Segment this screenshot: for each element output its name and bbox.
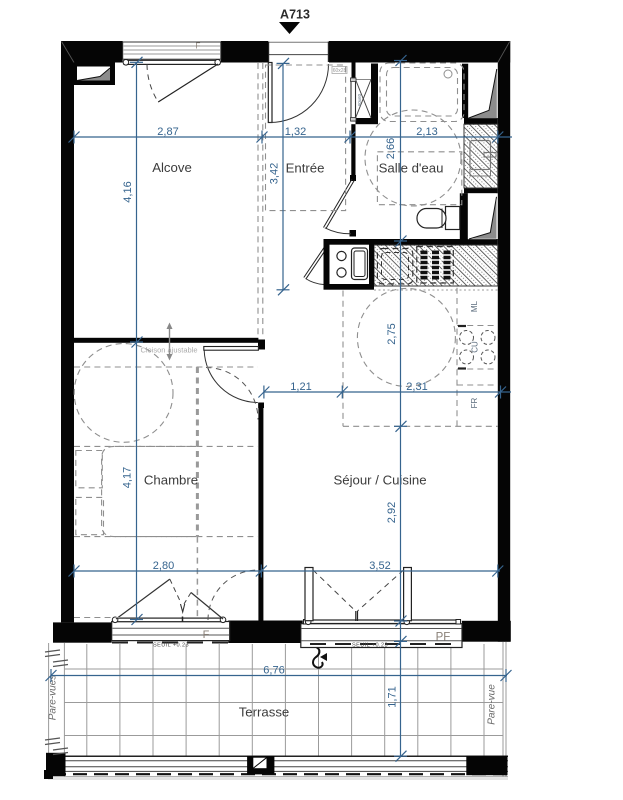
svg-text:Entrée: Entrée	[286, 161, 325, 176]
svg-text:Chambre: Chambre	[144, 473, 198, 488]
svg-text:2,13: 2,13	[416, 126, 437, 138]
svg-text:Cloison ajustable: Cloison ajustable	[140, 346, 197, 355]
svg-text:SEUIL +0.23: SEUIL +0.23	[352, 642, 388, 648]
svg-text:4,17: 4,17	[122, 467, 134, 488]
svg-text:60x60: 60x60	[357, 93, 362, 106]
svg-text:60x28: 60x28	[333, 68, 347, 74]
svg-text:F: F	[203, 629, 210, 641]
svg-text:Terrasse: Terrasse	[239, 705, 290, 720]
svg-text:1,21: 1,21	[290, 381, 311, 393]
svg-text:2,87: 2,87	[157, 126, 178, 138]
svg-text:2,80: 2,80	[153, 560, 174, 572]
svg-text:2,66: 2,66	[385, 138, 397, 159]
svg-text:2,31: 2,31	[406, 381, 427, 393]
svg-text:SEUIL +0.23: SEUIL +0.23	[153, 643, 189, 649]
svg-text:1,71: 1,71	[387, 686, 399, 707]
svg-text:A713: A713	[280, 8, 310, 22]
svg-text:Pare-vues: Pare-vues	[48, 675, 59, 721]
svg-text:CU: CU	[471, 341, 480, 353]
svg-text:4,16: 4,16	[122, 181, 134, 202]
svg-text:2,75: 2,75	[386, 323, 398, 344]
svg-text:1,32: 1,32	[285, 126, 306, 138]
svg-text:PF: PF	[436, 631, 451, 643]
svg-text:2,92: 2,92	[386, 502, 398, 523]
svg-text:F: F	[196, 42, 201, 51]
svg-text:Pare-vue: Pare-vue	[487, 684, 498, 725]
svg-text:ML: ML	[470, 300, 479, 312]
svg-text:Salle d'eau: Salle d'eau	[379, 161, 444, 176]
svg-text:Alcove: Alcove	[152, 160, 192, 175]
svg-text:3,42: 3,42	[269, 163, 281, 184]
svg-text:Séjour / Cuisine: Séjour / Cuisine	[333, 473, 426, 488]
svg-text:6,76: 6,76	[263, 665, 284, 677]
svg-text:3,52: 3,52	[369, 560, 390, 572]
svg-text:FR: FR	[470, 397, 479, 408]
